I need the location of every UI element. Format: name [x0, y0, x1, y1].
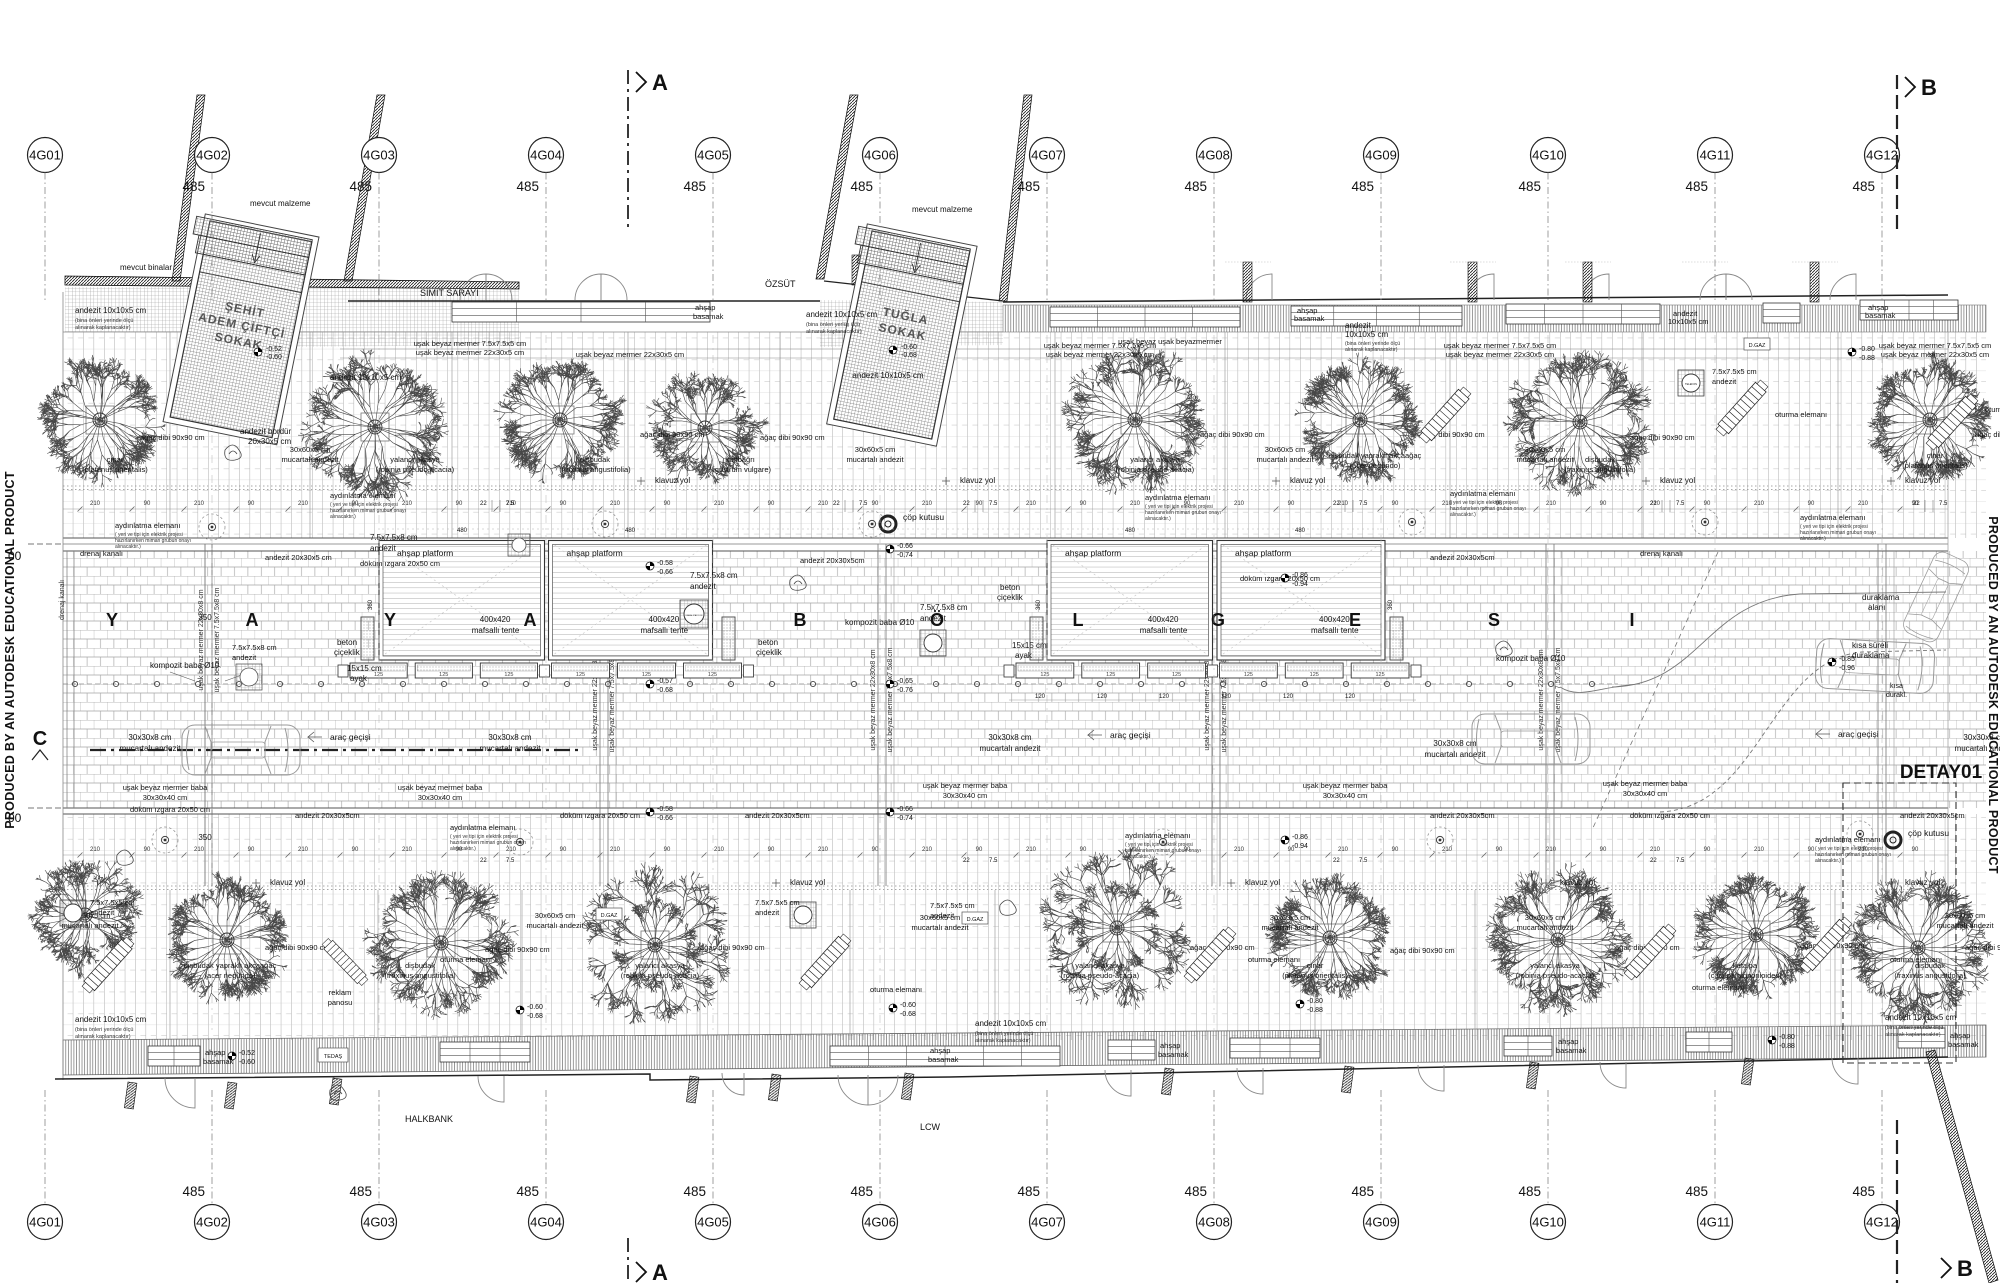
- svg-text:22: 22: [833, 501, 840, 507]
- svg-text:uşak beyaz mermer 22x30x8 cm: uşak beyaz mermer 22x30x8 cm: [870, 649, 877, 750]
- svg-text:(bina önleri yerinde ölçü: (bina önleri yerinde ölçü: [75, 1027, 133, 1033]
- svg-text:oturma elemanı: oturma elemanı: [1248, 955, 1300, 964]
- svg-text:beton: beton: [1000, 583, 1020, 592]
- svg-text:(bina önleri yerinde ölçü: (bina önleri yerinde ölçü: [75, 318, 133, 324]
- svg-text:125: 125: [642, 672, 651, 678]
- svg-text:(fraxinus angustifolia): (fraxinus angustifolia): [1894, 971, 1966, 980]
- svg-text:klavuz yol: klavuz yol: [790, 878, 825, 887]
- svg-text:(catalpa bignonioides): (catalpa bignonioides): [1708, 971, 1782, 980]
- svg-text:ağaç dibi 90x90 cm: ağaç dibi 90x90 cm: [760, 433, 825, 442]
- svg-text:-0.60: -0.60: [527, 1004, 543, 1011]
- svg-text:alınarak kaplanacaktır): alınarak kaplanacaktır): [75, 1034, 131, 1040]
- svg-text:30x30x40 cm: 30x30x40 cm: [943, 791, 988, 800]
- svg-text:PRODUCED BY AN AUTODESK EDUCAT: PRODUCED BY AN AUTODESK EDUCATIONAL PROD…: [1986, 516, 2000, 874]
- svg-text:485: 485: [1852, 1184, 1875, 1199]
- svg-text:dişbudak: dişbudak: [580, 455, 610, 464]
- svg-text:kısa süreli: kısa süreli: [1852, 641, 1888, 650]
- svg-text:7.5x7.5x5 cm: 7.5x7.5x5 cm: [930, 901, 975, 910]
- svg-text:duraklama: duraklama: [1852, 651, 1890, 660]
- svg-text:22: 22: [963, 858, 970, 864]
- svg-text:(ligustrum vulgare): (ligustrum vulgare): [709, 465, 772, 474]
- svg-text:basamak: basamak: [1556, 1046, 1587, 1055]
- svg-text:20x30x5 cm: 20x30x5 cm: [248, 437, 291, 446]
- svg-text:-0.88: -0.88: [1859, 355, 1875, 362]
- svg-text:4G12: 4G12: [1866, 1215, 1898, 1230]
- svg-text:400x420: 400x420: [1319, 615, 1350, 624]
- svg-text:125: 125: [439, 672, 448, 678]
- svg-text:klavuz yol: klavuz yol: [1905, 476, 1940, 485]
- svg-text:485: 485: [1685, 179, 1708, 194]
- svg-text:-0.85: -0.85: [1839, 656, 1855, 663]
- svg-text:döküm ızgara 20x50 cm: döküm ızgara 20x50 cm: [1630, 811, 1710, 820]
- svg-text:panosu: panosu: [328, 998, 353, 1007]
- svg-text:-0.88: -0.88: [1779, 1043, 1795, 1050]
- svg-text:uşak beyaz mermer 7.5x7.5x8 cm: uşak beyaz mermer 7.5x7.5x8 cm: [609, 647, 616, 752]
- svg-text:485: 485: [1351, 1184, 1374, 1199]
- svg-text:(fraxinus angustifolia): (fraxinus angustifolia): [559, 465, 631, 474]
- svg-text:-0.74: -0.74: [897, 815, 913, 822]
- svg-text:90: 90: [664, 501, 671, 507]
- svg-text:çiçeklik: çiçeklik: [756, 648, 783, 657]
- svg-text:210: 210: [1130, 501, 1141, 507]
- svg-text:-0.66: -0.66: [657, 815, 673, 822]
- svg-text:-0.57: -0.57: [657, 678, 673, 685]
- svg-text:90: 90: [976, 501, 983, 507]
- svg-text:210: 210: [1234, 501, 1245, 507]
- svg-text:22: 22: [1333, 858, 1340, 864]
- svg-text:aydınlatma elemanı: aydınlatma elemanı: [1145, 493, 1210, 502]
- svg-text:125: 125: [1244, 672, 1253, 678]
- svg-text:ahşap: ahşap: [1558, 1037, 1578, 1046]
- svg-text:120: 120: [1221, 694, 1232, 700]
- svg-text:210: 210: [922, 847, 933, 853]
- svg-text:KANALİZASYON: KANALİZASYON: [686, 614, 703, 617]
- svg-text:-0.86: -0.86: [1292, 572, 1308, 579]
- svg-text:ağaç dibi 90x90 cm: ağaç dibi 90x90 cm: [1630, 433, 1695, 442]
- svg-text:90: 90: [248, 847, 255, 853]
- svg-text:4G02: 4G02: [196, 148, 228, 163]
- svg-text:-0.74: -0.74: [897, 552, 913, 559]
- svg-text:uşak beyaz mermer baba: uşak beyaz mermer baba: [123, 783, 208, 792]
- svg-text:480: 480: [625, 528, 636, 534]
- svg-text:485: 485: [182, 1184, 205, 1199]
- svg-text:drenaj kanalı: drenaj kanalı: [59, 580, 66, 620]
- svg-text:basamak: basamak: [693, 312, 724, 321]
- svg-text:22: 22: [480, 858, 487, 864]
- svg-text:andezit 10x10x5 cm: andezit 10x10x5 cm: [330, 373, 401, 382]
- svg-text:485: 485: [1184, 1184, 1207, 1199]
- svg-text:120: 120: [1283, 694, 1294, 700]
- svg-text:30x60x5 cm: 30x60x5 cm: [535, 911, 575, 920]
- svg-text:485: 485: [1184, 179, 1207, 194]
- svg-text:mucartalı andezit: mucartalı andezit: [526, 921, 584, 930]
- svg-text:Y: Y: [384, 610, 396, 630]
- svg-text:alınarak kaplanacaktır): alınarak kaplanacaktır): [1345, 347, 1398, 353]
- svg-text:210: 210: [90, 847, 101, 853]
- svg-text:aydınlatma elemanı: aydınlatma elemanı: [330, 491, 395, 500]
- svg-text:30x60x5 cm: 30x60x5 cm: [1265, 445, 1305, 454]
- svg-text:çınar: çınar: [1927, 451, 1944, 460]
- svg-text:210: 210: [1546, 847, 1557, 853]
- svg-text:-0.94: -0.94: [1292, 843, 1308, 850]
- svg-text:485: 485: [1518, 1184, 1541, 1199]
- svg-text:basamak: basamak: [1158, 1050, 1189, 1059]
- svg-text:(platanus orientalis): (platanus orientalis): [1282, 971, 1348, 980]
- svg-text:oturma elemanı: oturma elemanı: [1890, 955, 1942, 964]
- svg-text:-0.66: -0.66: [897, 543, 913, 550]
- svg-text:485: 485: [683, 1184, 706, 1199]
- svg-text:90: 90: [1496, 847, 1503, 853]
- svg-text:4G10: 4G10: [1532, 1215, 1564, 1230]
- svg-text:D.GAZ: D.GAZ: [601, 913, 618, 919]
- svg-text:SİMİT SARAYI: SİMİT SARAYI: [420, 288, 479, 298]
- svg-text:döküm ızgara 20x50 cm: döküm ızgara 20x50 cm: [560, 811, 640, 820]
- svg-text:90: 90: [1600, 501, 1607, 507]
- svg-text:210: 210: [1026, 847, 1037, 853]
- svg-text:4G12: 4G12: [1866, 148, 1898, 163]
- svg-text:kompozit baba Ø10: kompozit baba Ø10: [1496, 654, 1566, 663]
- svg-text:uşak beyaz mermer 22x30x5 cm: uşak beyaz mermer 22x30x5 cm: [1046, 350, 1154, 359]
- svg-text:uşak beyaz mermer baba: uşak beyaz mermer baba: [923, 781, 1008, 790]
- svg-text:çiçeklik: çiçeklik: [997, 593, 1024, 602]
- svg-text:30x30x40 cm: 30x30x40 cm: [1323, 791, 1368, 800]
- svg-text:125: 125: [1106, 672, 1115, 678]
- svg-text:120: 120: [1097, 694, 1108, 700]
- svg-text:klavuz yol: klavuz yol: [1290, 476, 1325, 485]
- svg-text:çınar: çınar: [1307, 961, 1324, 970]
- svg-text:uşak beyaz mermer 7.5x7.5x8 cm: uşak beyaz mermer 7.5x7.5x8 cm: [214, 587, 221, 692]
- svg-text:90: 90: [248, 501, 255, 507]
- svg-text:90: 90: [144, 847, 151, 853]
- svg-text:andezit 10x10x5 cm: andezit 10x10x5 cm: [806, 310, 877, 319]
- svg-text:yalancı akasya: yalancı akasya: [1130, 455, 1180, 464]
- svg-text:485: 485: [1017, 179, 1040, 194]
- svg-text:210: 210: [506, 847, 517, 853]
- svg-text:-0.76: -0.76: [897, 687, 913, 694]
- svg-text:andezit bordür: andezit bordür: [240, 427, 291, 436]
- svg-text:çınar: çınar: [107, 455, 124, 464]
- svg-text:andezit 20x30x5cm: andezit 20x30x5cm: [1430, 553, 1495, 562]
- svg-text:90: 90: [352, 847, 359, 853]
- svg-text:alanı: alanı: [1868, 603, 1885, 612]
- svg-text:120: 120: [1345, 694, 1356, 700]
- svg-text:aydınlatma elemanı: aydınlatma elemanı: [1815, 835, 1880, 844]
- svg-text:oturma elemanı: oturma elemanı: [440, 955, 492, 964]
- svg-text:485: 485: [1017, 1184, 1040, 1199]
- svg-text:210: 210: [90, 501, 101, 507]
- svg-text:210: 210: [1338, 847, 1349, 853]
- svg-text:90: 90: [1704, 501, 1711, 507]
- svg-text:360: 360: [368, 599, 374, 610]
- svg-text:30x30x40 cm: 30x30x40 cm: [143, 793, 188, 802]
- svg-text:4G07: 4G07: [1031, 1215, 1063, 1230]
- svg-text:ahşap platform: ahşap platform: [397, 548, 453, 558]
- svg-text:uşak beyaz mermer 7.5x7.5x5 cm: uşak beyaz mermer 7.5x7.5x5 cm: [414, 339, 527, 348]
- svg-text:350: 350: [198, 833, 212, 842]
- svg-text:485: 485: [349, 179, 372, 194]
- svg-text:mucartalı andezit: mucartalı andezit: [120, 744, 182, 753]
- svg-text:alınacaktır.): alınacaktır.): [1145, 516, 1171, 522]
- svg-text:22: 22: [1650, 858, 1657, 864]
- svg-text:90: 90: [976, 847, 983, 853]
- svg-text:basamak: basamak: [928, 1055, 959, 1064]
- svg-text:-0.96: -0.96: [1839, 665, 1855, 672]
- svg-text:30x60x5 cm: 30x60x5 cm: [1945, 911, 1985, 920]
- svg-text:andezit: andezit: [930, 911, 955, 920]
- svg-text:485: 485: [516, 1184, 539, 1199]
- svg-text:aydınlatma elemanı: aydınlatma elemanı: [1450, 489, 1515, 498]
- svg-text:alınacaktır.): alınacaktır.): [330, 514, 356, 520]
- svg-text:ağaç dibi 90x90 cm: ağaç dibi 90x90 cm: [485, 945, 550, 954]
- svg-text:7.5: 7.5: [1676, 858, 1685, 864]
- svg-text:ahşap: ahşap: [930, 1046, 950, 1055]
- svg-text:aydınlatma elemanı: aydınlatma elemanı: [450, 823, 515, 832]
- svg-text:D.GAZ: D.GAZ: [1749, 343, 1766, 349]
- svg-text:uşak beyaz mermer 22x30x8 cm: uşak beyaz mermer 22x30x8 cm: [198, 589, 205, 690]
- svg-text:210: 210: [610, 501, 621, 507]
- svg-text:360: 360: [1036, 599, 1042, 610]
- svg-text:4G08: 4G08: [1198, 148, 1230, 163]
- svg-text:çöp kutusu: çöp kutusu: [1908, 828, 1949, 838]
- svg-text:7.5: 7.5: [1676, 501, 1685, 507]
- svg-text:210: 210: [610, 847, 621, 853]
- svg-text:klavuz yol: klavuz yol: [270, 878, 305, 887]
- svg-text:210: 210: [714, 847, 725, 853]
- svg-text:I: I: [1629, 610, 1634, 630]
- svg-text:4G03: 4G03: [363, 1215, 395, 1230]
- svg-text:-0.52: -0.52: [266, 346, 282, 353]
- svg-text:andezit 10x10x5 cm: andezit 10x10x5 cm: [75, 1015, 146, 1024]
- svg-text:DETAY01: DETAY01: [1900, 762, 1983, 783]
- svg-text:(robinia pseudo-acacia): (robinia pseudo-acacia): [1116, 465, 1195, 474]
- svg-text:485: 485: [1351, 179, 1374, 194]
- svg-text:7.5: 7.5: [989, 501, 998, 507]
- svg-text:90: 90: [768, 501, 775, 507]
- svg-text:ahşap: ahşap: [1950, 1031, 1970, 1040]
- svg-text:30x30x40 cm: 30x30x40 cm: [1623, 789, 1668, 798]
- svg-text:kurtbağrı: kurtbağrı: [725, 455, 755, 464]
- svg-text:beton: beton: [337, 638, 357, 647]
- svg-text:90: 90: [1392, 501, 1399, 507]
- svg-text:-0.88: -0.88: [1307, 1007, 1323, 1014]
- svg-text:ahşap platform: ahşap platform: [1065, 548, 1121, 558]
- svg-text:210: 210: [194, 847, 205, 853]
- svg-text:dişbudak yapraklı akçaağaç: dişbudak yapraklı akçaağaç: [184, 961, 277, 970]
- svg-text:125: 125: [708, 672, 717, 678]
- svg-text:alınacaktır.): alınacaktır.): [1800, 536, 1826, 542]
- svg-text:210: 210: [1650, 847, 1661, 853]
- svg-text:dişbudak yapraklı akçaağaç: dişbudak yapraklı akçaağaç: [1329, 451, 1422, 460]
- svg-text:7.5: 7.5: [1939, 501, 1948, 507]
- svg-text:(bina önleri yerlüş üçü: (bina önleri yerlüş üçü: [806, 322, 860, 328]
- svg-text:-0.60: -0.60: [900, 1002, 916, 1009]
- svg-text:4G01: 4G01: [29, 1215, 61, 1230]
- svg-text:7.5: 7.5: [1359, 858, 1368, 864]
- svg-text:30x30x40 cm: 30x30x40 cm: [418, 793, 463, 802]
- svg-text:araç geçişi: araç geçişi: [330, 732, 371, 742]
- svg-text:B: B: [1957, 1256, 1973, 1281]
- svg-text:4G10: 4G10: [1532, 148, 1564, 163]
- svg-text:basamak: basamak: [1294, 314, 1325, 323]
- svg-text:aydınlatma elemanı: aydınlatma elemanı: [1800, 513, 1865, 522]
- svg-text:ahşap: ahşap: [1160, 1041, 1180, 1050]
- svg-text:30x60x5 cm: 30x60x5 cm: [290, 445, 330, 454]
- svg-text:-0.58: -0.58: [657, 806, 673, 813]
- svg-text:alınacaktır.): alınacaktır.): [1125, 854, 1151, 860]
- svg-text:yalancı akasya: yalancı akasya: [1530, 961, 1580, 970]
- svg-text:mafsallı tente: mafsallı tente: [1140, 626, 1188, 635]
- svg-text:LCW: LCW: [920, 1122, 941, 1132]
- svg-text:120: 120: [1035, 694, 1046, 700]
- svg-text:ahşap: ahşap: [695, 303, 715, 312]
- svg-text:Y: Y: [106, 610, 118, 630]
- svg-text:uşak beyaz mermer 7.5x7.5x8 cm: uşak beyaz mermer 7.5x7.5x8 cm: [1555, 647, 1562, 752]
- svg-text:uşak beyaz uşak beyazmermer: uşak beyaz uşak beyazmermer: [1118, 337, 1222, 346]
- svg-text:G: G: [1211, 610, 1225, 630]
- svg-text:TEDAŞ: TEDAŞ: [324, 1054, 343, 1060]
- svg-text:andezit 20x30x5 cm: andezit 20x30x5 cm: [265, 553, 332, 562]
- svg-text:485: 485: [1852, 179, 1875, 194]
- svg-text:-0.52: -0.52: [239, 1050, 255, 1057]
- svg-text:30x60x5 cm: 30x60x5 cm: [1525, 445, 1565, 454]
- svg-text:7.5: 7.5: [989, 858, 998, 864]
- svg-text:uşak beyaz mermer 22x30x8 cm: uşak beyaz mermer 22x30x8 cm: [1538, 649, 1545, 750]
- svg-text:-0.68: -0.68: [657, 687, 673, 694]
- svg-text:andezit 20x30x5cm: andezit 20x30x5cm: [295, 811, 360, 820]
- svg-text:210: 210: [818, 501, 829, 507]
- svg-text:30x30x8 cm: 30x30x8 cm: [1433, 739, 1476, 748]
- svg-text:oturma elemanı: oturma elemanı: [1692, 983, 1744, 992]
- svg-text:485: 485: [1518, 179, 1541, 194]
- svg-text:90: 90: [1080, 847, 1087, 853]
- svg-text:90: 90: [144, 501, 151, 507]
- svg-text:210: 210: [298, 501, 309, 507]
- svg-text:22: 22: [480, 501, 487, 507]
- svg-text:485: 485: [349, 1184, 372, 1199]
- svg-text:125: 125: [1310, 672, 1319, 678]
- svg-text:A: A: [524, 610, 537, 630]
- svg-text:TELEFON: TELEFON: [1685, 382, 1697, 386]
- svg-text:-0.80: -0.80: [1859, 346, 1875, 353]
- svg-text:kompozit baba Ø10: kompozit baba Ø10: [150, 661, 220, 670]
- svg-text:4G09: 4G09: [1365, 148, 1397, 163]
- svg-text:210: 210: [714, 501, 725, 507]
- svg-text:210: 210: [1442, 847, 1453, 853]
- svg-text:andezit 20x30x5cm: andezit 20x30x5cm: [745, 811, 810, 820]
- svg-text:120: 120: [1159, 694, 1170, 700]
- svg-text:A: A: [652, 70, 668, 95]
- svg-text:S: S: [1488, 610, 1500, 630]
- svg-text:90: 90: [1080, 501, 1087, 507]
- svg-text:ağaç dibi 90x90 cm: ağaç dibi 90x90 cm: [640, 430, 705, 439]
- svg-text:andezit 20x30x5cm: andezit 20x30x5cm: [1900, 811, 1965, 820]
- svg-text:katalpa: katalpa: [1733, 961, 1758, 970]
- svg-text:-0.60: -0.60: [239, 1059, 255, 1066]
- svg-text:-0.66: -0.66: [657, 569, 673, 576]
- svg-text:-0.60: -0.60: [266, 354, 282, 361]
- svg-text:4G06: 4G06: [864, 148, 896, 163]
- svg-text:210: 210: [818, 847, 829, 853]
- svg-text:ağaç dibi 90x90 cm: ağaç dibi 90x90 cm: [265, 943, 330, 952]
- svg-text:drenaj kanalı: drenaj kanalı: [1640, 549, 1683, 558]
- svg-text:mucartalı andezit: mucartalı andezit: [480, 744, 542, 753]
- svg-text:7.5x7.5x8 cm: 7.5x7.5x8 cm: [920, 603, 968, 612]
- svg-text:B: B: [1921, 75, 1937, 100]
- svg-text:andezit 10x10x5 cm: andezit 10x10x5 cm: [1885, 1013, 1956, 1022]
- svg-text:uşak beyaz mermer 7.5x7.5x8 cm: uşak beyaz mermer 7.5x7.5x8 cm: [887, 647, 894, 752]
- svg-text:30x30x8 cm: 30x30x8 cm: [988, 733, 1031, 742]
- svg-text:mevcut malzeme: mevcut malzeme: [912, 205, 973, 214]
- svg-text:L: L: [1073, 610, 1084, 630]
- svg-text:ahşap platform: ahşap platform: [567, 548, 623, 558]
- svg-text:-0.68: -0.68: [900, 1011, 916, 1018]
- svg-text:uşak beyaz mermer baba: uşak beyaz mermer baba: [398, 783, 483, 792]
- svg-text:125: 125: [1172, 672, 1181, 678]
- svg-text:drenaj kanalı: drenaj kanalı: [80, 549, 123, 558]
- svg-text:mucartalı andezit: mucartalı andezit: [1516, 923, 1574, 932]
- svg-text:30x60x5 cm: 30x60x5 cm: [1525, 913, 1565, 922]
- svg-text:485: 485: [683, 179, 706, 194]
- svg-text:klavuz yol: klavuz yol: [655, 476, 690, 485]
- svg-text:andezit 10x10x5 cm: andezit 10x10x5 cm: [75, 306, 146, 315]
- svg-text:yalancı akasya: yalancı akasya: [390, 455, 440, 464]
- svg-text:andezit 10x10x5 cm: andezit 10x10x5 cm: [975, 1019, 1046, 1028]
- svg-text:uşak beyaz mermer 7.5x7.5x5 cm: uşak beyaz mermer 7.5x7.5x5 cm: [1879, 341, 1992, 350]
- svg-text:C: C: [33, 728, 47, 750]
- svg-text:aydınlatma elemanı: aydınlatma elemanı: [115, 521, 180, 530]
- svg-text:90: 90: [1392, 847, 1399, 853]
- svg-text:yalancı akasya: yalancı akasya: [635, 961, 685, 970]
- svg-text:4G04: 4G04: [530, 148, 562, 163]
- svg-text:4G05: 4G05: [697, 1215, 729, 1230]
- svg-text:ÖZSÜT: ÖZSÜT: [765, 279, 796, 289]
- svg-text:4G02: 4G02: [196, 1215, 228, 1230]
- svg-text:-0.68: -0.68: [527, 1013, 543, 1020]
- svg-text:485: 485: [850, 1184, 873, 1199]
- svg-text:alınarak kaplanacaktır): alınarak kaplanacaktır): [975, 1038, 1031, 1044]
- svg-text:(robinia pseudo-acacia): (robinia pseudo-acacia): [1061, 971, 1140, 980]
- svg-text:andezit 20x30x5cm: andezit 20x30x5cm: [800, 556, 865, 565]
- svg-text:alınarak kaplanacaktır): alınarak kaplanacaktır): [75, 325, 131, 331]
- svg-text:400x420: 400x420: [649, 615, 680, 624]
- svg-text:alınacaktır.): alınacaktır.): [1815, 858, 1841, 864]
- svg-text:210: 210: [1234, 847, 1245, 853]
- svg-text:durakl.: durakl.: [1886, 692, 1907, 699]
- svg-text:125: 125: [576, 672, 585, 678]
- svg-text:22: 22: [1333, 501, 1340, 507]
- svg-text:(robinia pseudo-acacia): (robinia pseudo-acacia): [376, 465, 455, 474]
- svg-text:7.5x7.5x5 cm: 7.5x7.5x5 cm: [90, 898, 135, 907]
- svg-text:22: 22: [963, 501, 970, 507]
- svg-text:uşak beyaz mermer 22x30x5 cm: uşak beyaz mermer 22x30x5 cm: [1881, 350, 1989, 359]
- svg-text:uşak beyaz mermer baba: uşak beyaz mermer baba: [1603, 779, 1688, 788]
- svg-text:7.5: 7.5: [1359, 501, 1368, 507]
- svg-text:480: 480: [457, 528, 468, 534]
- svg-text:andezit: andezit: [90, 908, 115, 917]
- svg-text:yalancı akasya: yalancı akasya: [1075, 961, 1125, 970]
- svg-text:-0.65: -0.65: [897, 678, 913, 685]
- svg-text:ahşap platform: ahşap platform: [1235, 548, 1291, 558]
- svg-text:ağaç dibi 90x90 cm: ağaç dibi 90x90 cm: [140, 433, 205, 442]
- svg-text:4G07: 4G07: [1031, 148, 1063, 163]
- svg-text:4G03: 4G03: [363, 148, 395, 163]
- svg-text:-0.60: -0.60: [901, 344, 917, 351]
- svg-text:400x420: 400x420: [480, 615, 511, 624]
- svg-text:mucartalı andezit: mucartalı andezit: [1256, 455, 1314, 464]
- svg-text:210: 210: [402, 501, 413, 507]
- svg-text:90: 90: [872, 501, 879, 507]
- svg-text:210: 210: [1546, 501, 1557, 507]
